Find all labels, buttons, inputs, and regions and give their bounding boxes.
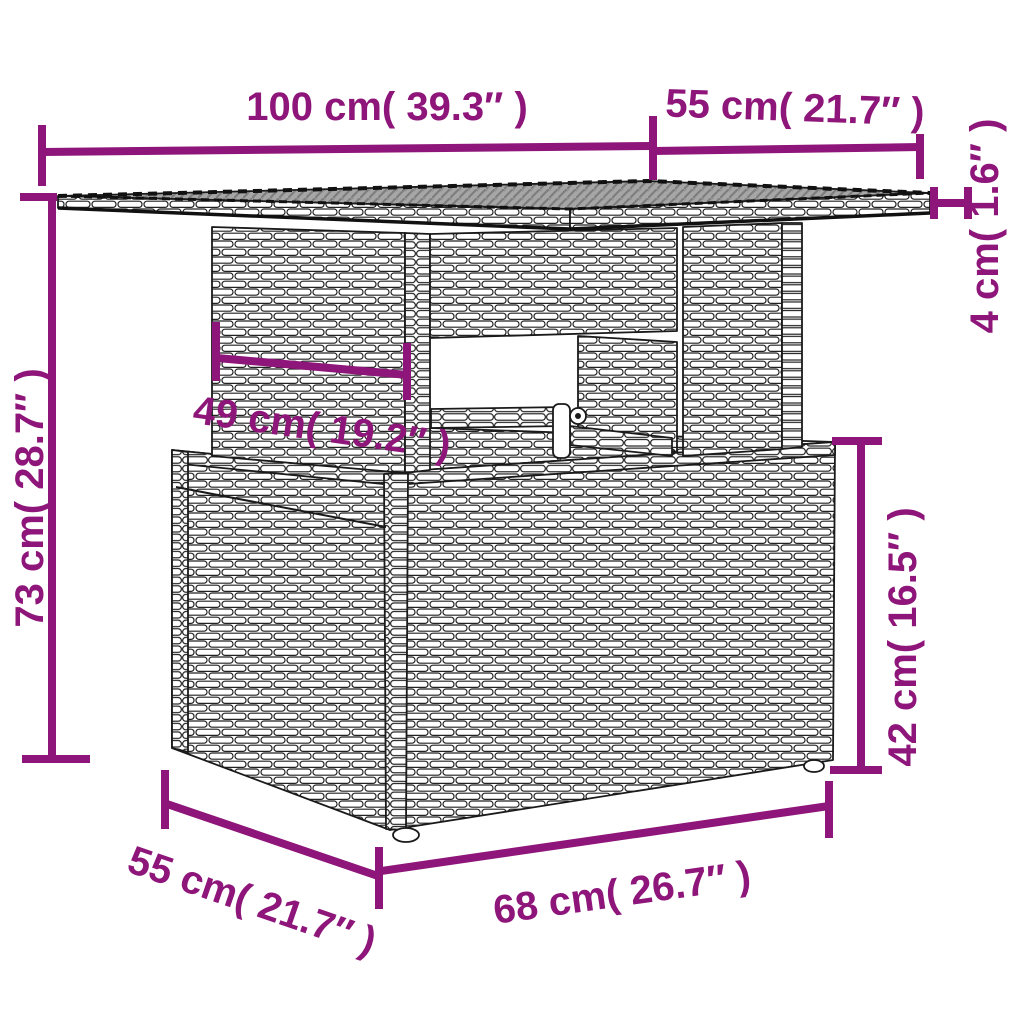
dim-top-depth-label: 55 cm( 21.7″ ) [665, 81, 926, 134]
dim-base-width-label: 68 cm( 26.7″ ) [491, 853, 754, 933]
base-front-corner-band [384, 472, 408, 830]
base-front-foot [393, 828, 419, 842]
pedestal-right-column-corner [782, 223, 802, 449]
pedestal-right-column [683, 223, 782, 456]
dim-top-thickness: 4 cm( 1.6″ ) [934, 119, 1007, 334]
tabletop [58, 181, 930, 229]
dim-top-width-label: 100 cm( 39.3″ ) [246, 85, 528, 129]
dim-base-height: 42 cm( 16.5″ ) [830, 441, 925, 770]
base-right-face [390, 442, 835, 830]
dim-total-height: 73 cm( 28.7″ ) [8, 197, 90, 759]
pedestal-wall-above-opening [430, 228, 677, 338]
dim-total-height-label: 73 cm( 28.7″ ) [8, 368, 52, 627]
dimension-diagram: 100 cm( 39.3″ ) 55 cm( 21.7″ ) 4 cm( 1.6… [0, 0, 1024, 1024]
base-left-corner-band [172, 450, 188, 752]
diagram-canvas: 100 cm( 39.3″ ) 55 cm( 21.7″ ) 4 cm( 1.6… [0, 0, 1024, 1024]
dim-top-thickness-label: 4 cm( 1.6″ ) [963, 119, 1007, 334]
dim-top-depth: 55 cm( 21.7″ ) [653, 81, 925, 179]
base-right-foot [804, 760, 824, 772]
adjustment-knob-center [575, 413, 581, 419]
dim-base-depth-label: 55 cm( 21.7″ ) [122, 838, 381, 964]
rail-bracket-post [553, 404, 570, 458]
dim-top-width-line [42, 146, 652, 152]
dim-top-width: 100 cm( 39.3″ ) [42, 85, 653, 186]
storage-base [172, 428, 835, 842]
dim-top-depth-line [653, 147, 920, 151]
dim-base-height-label: 42 cm( 16.5″ ) [881, 507, 925, 766]
